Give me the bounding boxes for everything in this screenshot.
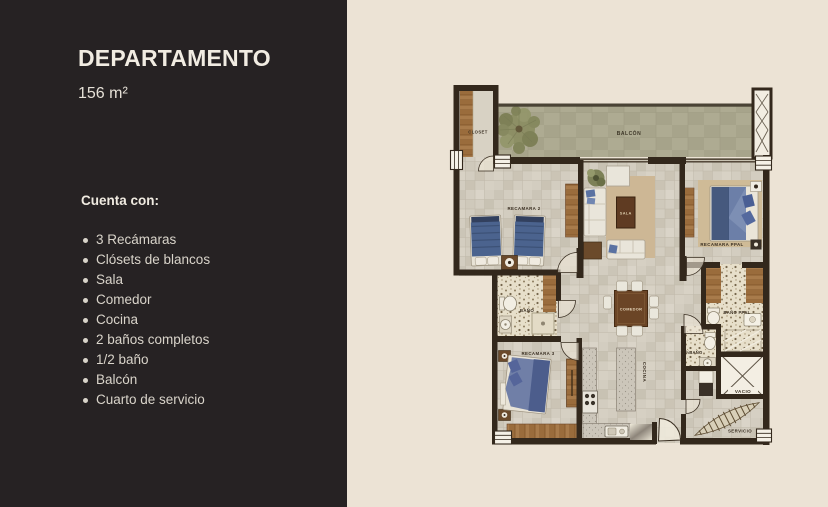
svg-text:SALA: SALA (620, 211, 632, 216)
svg-text:BALCÓN: BALCÓN (617, 129, 641, 137)
svg-text:RECAMARA PPAL: RECAMARA PPAL (700, 242, 743, 247)
svg-text:COCINA: COCINA (642, 362, 647, 383)
svg-text:½BAÑO: ½BAÑO (686, 350, 703, 355)
svg-text:BAÑO: BAÑO (520, 308, 534, 313)
svg-text:SERVICIO: SERVICIO (728, 429, 752, 434)
svg-text:RECAMARA 2: RECAMARA 2 (507, 206, 540, 211)
svg-text:BAÑO PPAL: BAÑO PPAL (723, 310, 750, 315)
svg-text:RECAMARA 3: RECAMARA 3 (521, 351, 554, 356)
svg-text:COMEDOR: COMEDOR (620, 307, 642, 312)
svg-text:VACIO: VACIO (735, 389, 751, 394)
svg-text:CLOSET: CLOSET (468, 130, 487, 135)
